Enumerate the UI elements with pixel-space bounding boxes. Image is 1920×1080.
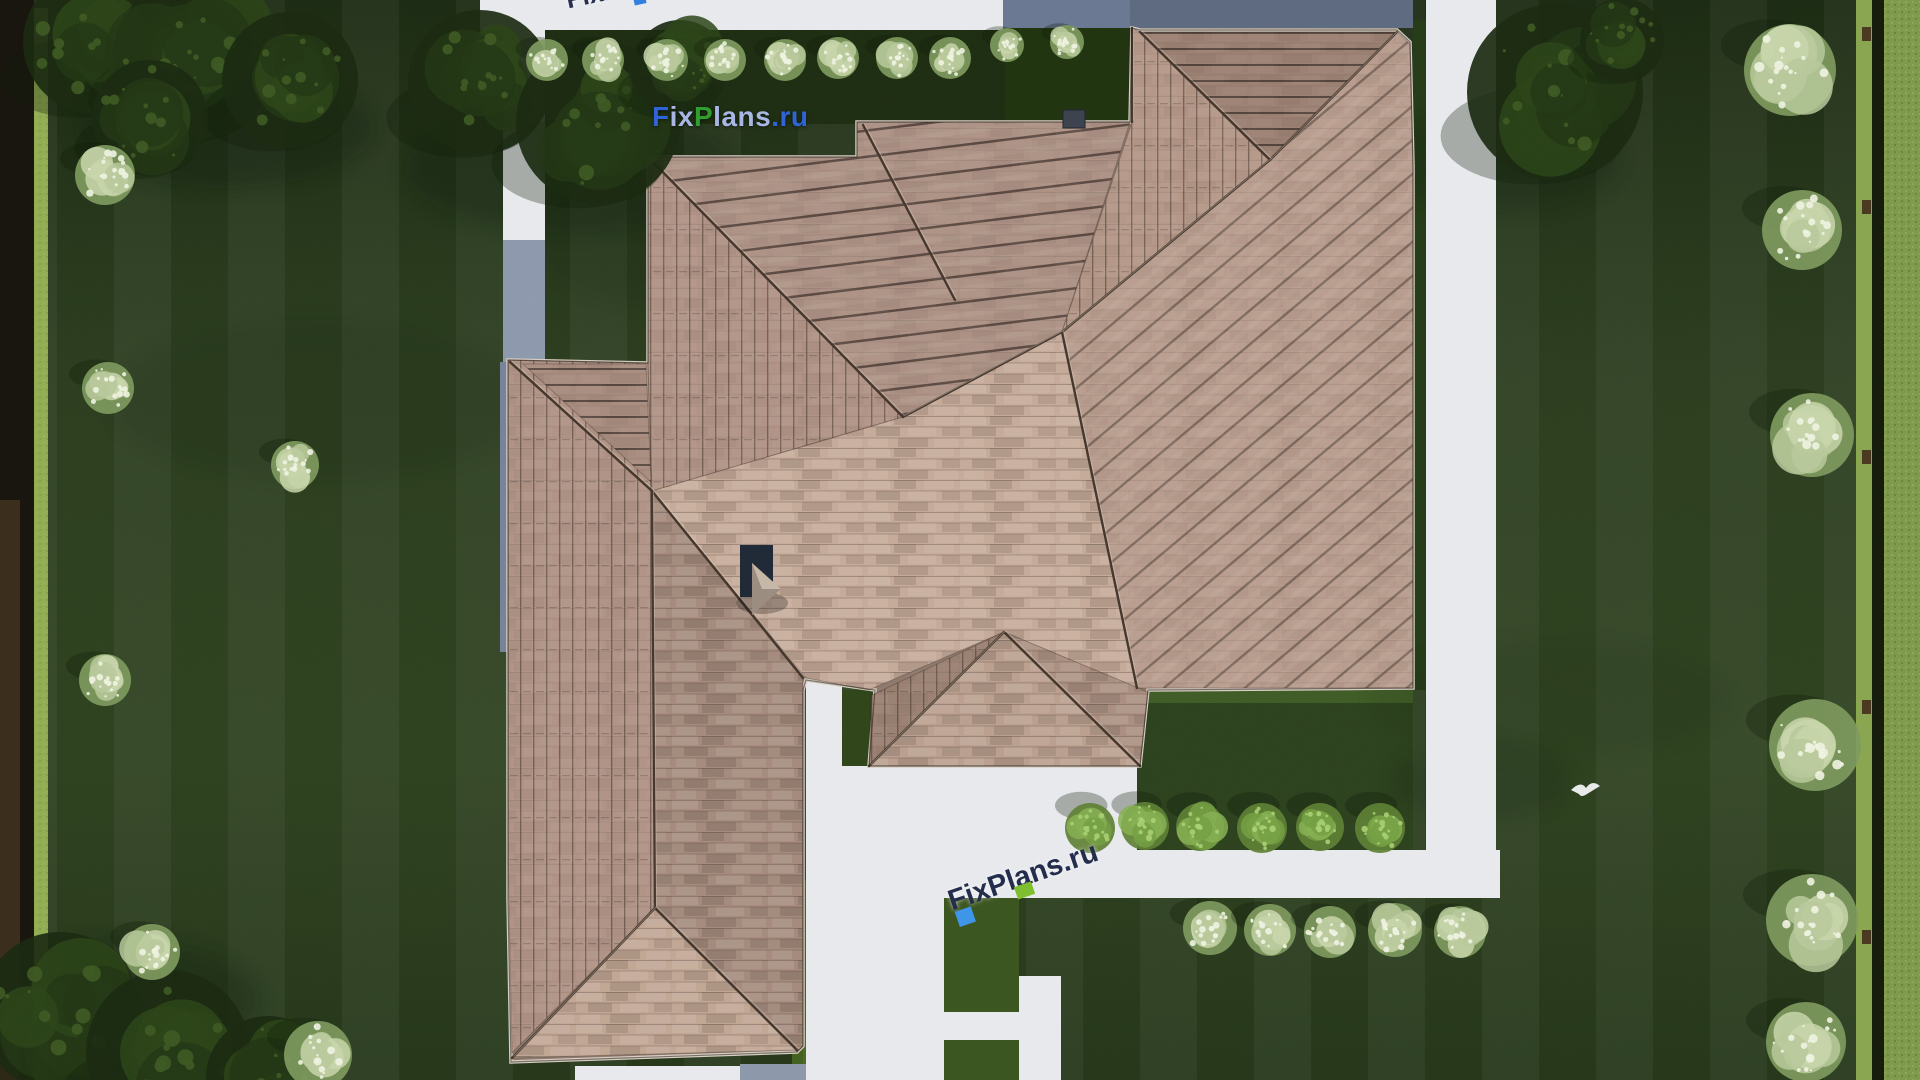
brand-letter: ru bbox=[779, 101, 808, 132]
aerial-house-site-render: FixPlans.ru FixPlans.ru FixPlans.ru bbox=[0, 0, 1920, 1080]
brand-letter: F bbox=[652, 101, 670, 132]
brand-letter: ix bbox=[670, 101, 694, 132]
brand-letter: P bbox=[694, 101, 713, 132]
brand-letter: lans bbox=[713, 101, 771, 132]
watermark-logo-top: FixPlans.ru bbox=[652, 101, 808, 133]
